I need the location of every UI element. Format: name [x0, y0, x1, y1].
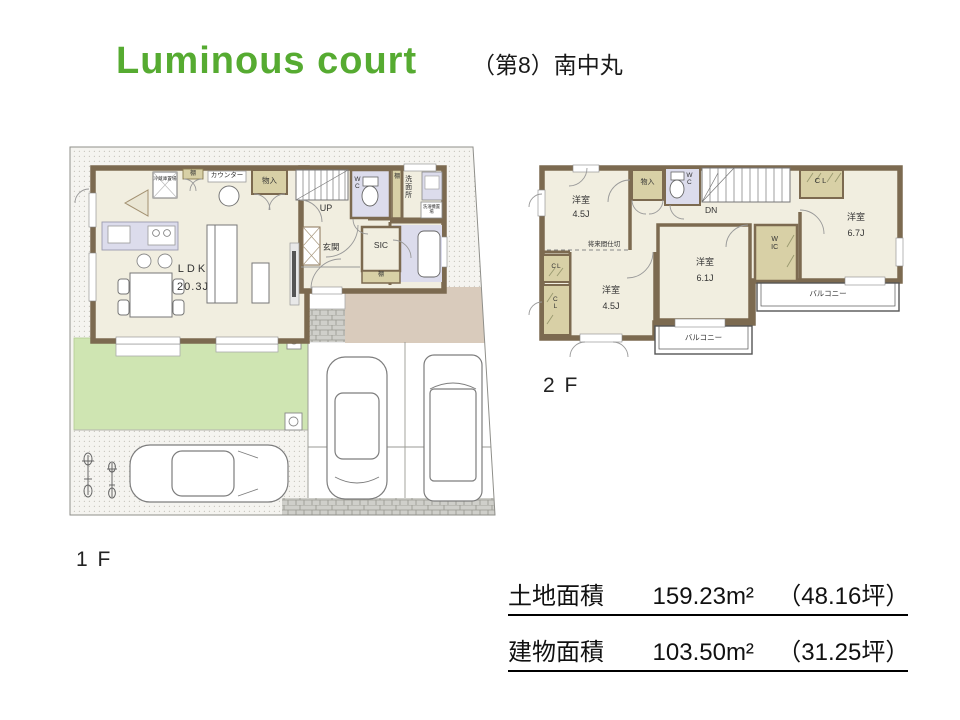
label-laundry: 洗濯機置場 — [422, 205, 441, 215]
bathtub — [418, 231, 440, 277]
label-stairs-down: DN — [705, 206, 717, 216]
label-cl-west-upper: CL — [543, 263, 570, 270]
label-stairs-up: UP — [314, 203, 338, 213]
room-size-center: 6.1J — [683, 273, 727, 283]
room-label-nw: 洋室 — [555, 195, 607, 205]
label-storage: 物入 — [252, 177, 287, 186]
label-shelf-sic: 棚 — [366, 272, 396, 279]
land-area-label: 土地面積 — [508, 576, 653, 611]
building-area-label: 建物面積 — [508, 632, 653, 667]
label-balcony-south: バルコニー — [655, 334, 752, 343]
toilet-tank — [363, 177, 378, 186]
building-area-tsubo: （31.25坪） — [777, 632, 908, 667]
stairs-down — [702, 168, 790, 202]
room-size-nw: 4.5J — [555, 209, 607, 219]
stairs-up — [296, 170, 348, 200]
stool — [137, 254, 151, 268]
building-area-row: 建物面積 103.50m² （31.25坪） — [508, 632, 908, 672]
chair — [118, 279, 129, 294]
room-label-center: 洋室 — [683, 257, 727, 267]
side-table — [252, 263, 269, 303]
page-subtitle: （第8）南中丸 — [472, 52, 623, 78]
label-fridge: 冷蔵庫置場 — [153, 176, 177, 181]
floor2-plan: 洋室 4.5J 物入 WC DN CL 洋室 6.7J WIC 洋室 6.1J … — [525, 152, 920, 367]
label-wc: WC — [354, 176, 361, 191]
sink — [108, 226, 130, 243]
floor1-plan: LDK 20.3J カウンター 棚 物入 冷蔵庫置場 UP WC 棚 洗面所 洗… — [68, 145, 498, 517]
room-label-sw: 洋室 — [585, 285, 637, 295]
floor2-label: 2 F — [543, 374, 579, 398]
label-cl-northeast: CL — [800, 177, 843, 186]
floor1-label: 1 F — [76, 548, 112, 572]
tv — [292, 251, 296, 297]
label-shelf-wc: 棚 — [394, 174, 400, 181]
terrace-step — [116, 344, 180, 356]
room-label-east: 洋室 — [830, 212, 882, 222]
room-size-east: 6.7J — [830, 228, 882, 238]
label-counter: カウンター — [208, 172, 246, 179]
label-washroom: 洗面所 — [405, 176, 412, 199]
floorplan-sheet: Luminous court （第8）南中丸 — [0, 0, 960, 720]
chair — [118, 300, 129, 315]
entrance-porch — [308, 293, 345, 309]
label-sic: SIC — [366, 241, 396, 251]
page-title: Luminous court — [116, 40, 417, 84]
room-label-ldk: LDK — [163, 263, 223, 276]
building-area-value: 103.50m² — [653, 639, 778, 667]
label-balcony-east: バルコニー — [757, 290, 899, 299]
label-storage-2f: 物入 — [632, 179, 663, 187]
room-size-sw: 4.5J — [585, 301, 637, 311]
toilet — [362, 186, 378, 206]
label-entrance: 玄関 — [314, 243, 348, 253]
wc-room-2f — [665, 168, 700, 205]
toilet-2f — [670, 180, 684, 198]
terrace-step — [216, 344, 278, 352]
driveway — [345, 287, 498, 343]
label-shelf-top: 棚 — [183, 171, 203, 178]
porch-brick-path — [310, 309, 345, 342]
room-size-ldk: 20.3J — [163, 281, 223, 294]
wic — [755, 225, 797, 281]
label-wic: WIC — [771, 236, 778, 252]
chair — [173, 300, 184, 315]
label-future-partition: 将来間仕切 — [573, 241, 635, 248]
floor1-plan-drawing — [68, 145, 498, 517]
round-stool — [219, 186, 239, 206]
land-area-tsubo: （48.16坪） — [777, 576, 908, 611]
dining-table — [130, 273, 172, 317]
stove — [148, 226, 175, 245]
label-wc-2f: WC — [686, 172, 693, 187]
land-area-row: 土地面積 159.23m² （48.16坪） — [508, 576, 908, 616]
label-cl-west-lower: CL — [552, 296, 559, 311]
land-area-value: 159.23m² — [653, 583, 778, 611]
